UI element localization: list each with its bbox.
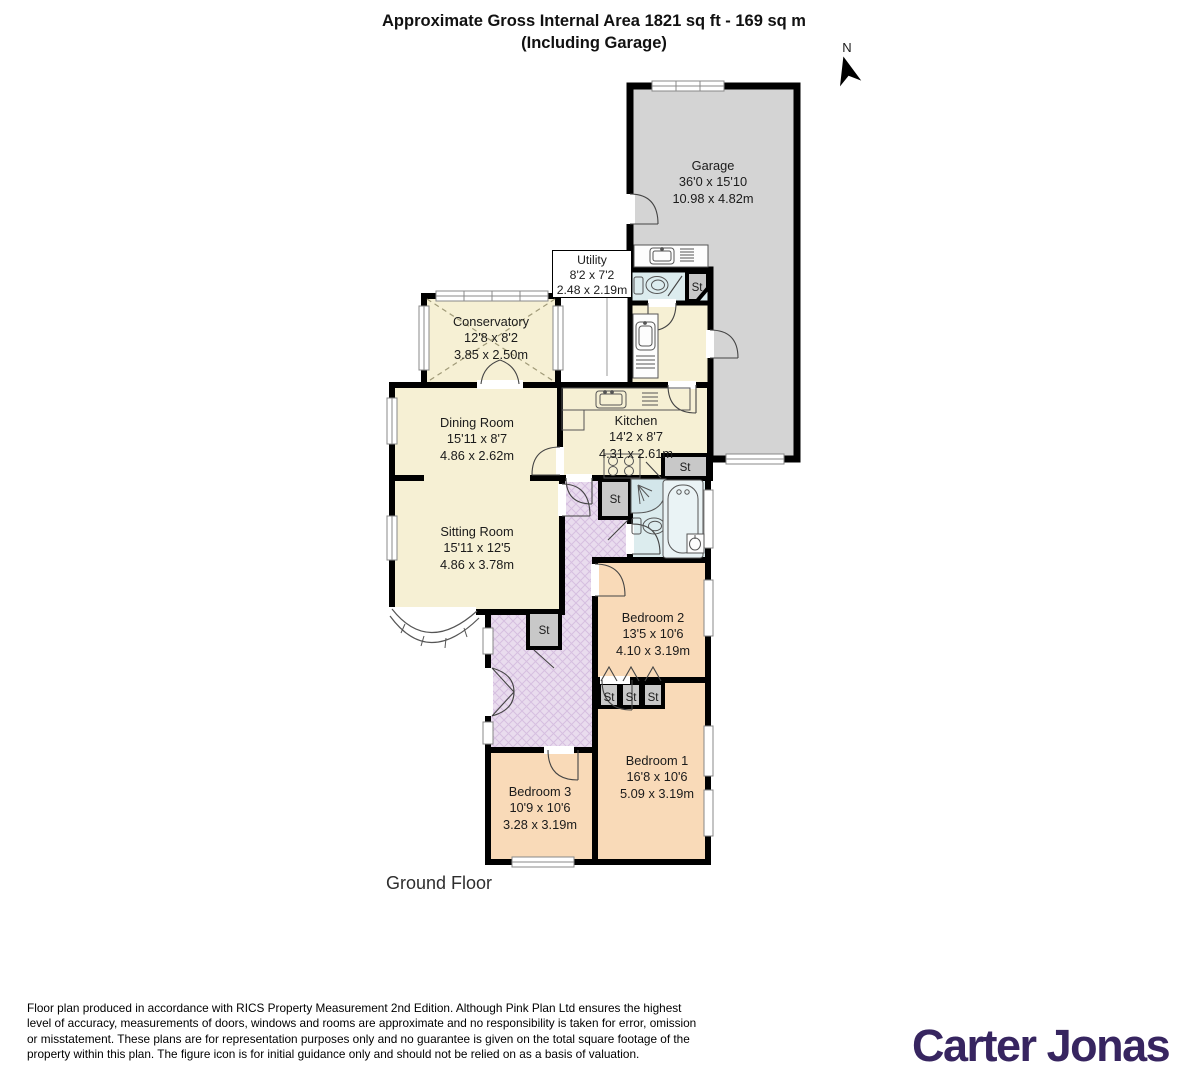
storage-label: St — [648, 692, 660, 704]
floorplan-svg: St St St St St St St N — [0, 0, 1200, 1087]
storage-label: St — [604, 692, 616, 704]
conservatory-label: Conservatory 12'8 x 8'2 3.85 x 2.50m — [431, 314, 551, 363]
bedroom-1-label: Bedroom 1 16'8 x 10'6 5.09 x 3.19m — [597, 753, 717, 802]
floor-label: Ground Floor — [386, 873, 492, 894]
storage-label: St — [626, 692, 638, 704]
dining-room-label: Dining Room 15'11 x 8'7 4.86 x 2.62m — [417, 415, 537, 464]
opening-dining-sitting — [424, 473, 530, 483]
brand-logo: Carter Jonas — [912, 1020, 1169, 1072]
bedroom-3-label: Bedroom 3 10'9 x 10'6 3.28 x 3.19m — [481, 784, 599, 833]
storage-label: St — [680, 462, 692, 474]
garage-workbench-sink-icon — [634, 245, 708, 267]
storage-label: St — [692, 282, 704, 294]
north-arrow: N — [833, 40, 861, 86]
disclaimer-line: or misstatement. These plans are for rep… — [27, 1032, 717, 1047]
north-label: N — [842, 40, 851, 55]
utility-label: Utility 8'2 x 7'2 2.48 x 2.19m — [552, 250, 632, 298]
bedroom-2-label: Bedroom 2 13'5 x 10'6 4.10 x 3.19m — [593, 610, 713, 659]
disclaimer-line: property within this plan. The figure ic… — [27, 1047, 717, 1062]
utility-sink-icon — [633, 314, 658, 378]
disclaimer-line: level of accuracy, measurements of doors… — [27, 1016, 717, 1031]
kitchen-label: Kitchen 14'2 x 8'7 4.31 x 2.61m — [576, 413, 696, 462]
window — [704, 490, 713, 548]
bathroom-sink-icon — [687, 534, 704, 553]
floorplan-page: Approximate Gross Internal Area 1821 sq … — [0, 0, 1200, 1087]
sitting-room-label: Sitting Room 15'11 x 12'5 4.86 x 3.78m — [417, 524, 537, 573]
storage-label: St — [539, 625, 551, 637]
bay-window — [388, 607, 479, 648]
window — [483, 628, 493, 654]
window — [483, 722, 493, 744]
garage-label: Garage 36'0 x 15'10 10.98 x 4.82m — [653, 158, 773, 207]
disclaimer-line: Floor plan produced in accordance with R… — [27, 1001, 717, 1016]
storage-label: St — [610, 494, 622, 506]
disclaimer: Floor plan produced in accordance with R… — [27, 1001, 717, 1063]
north-arrow-icon — [833, 54, 861, 87]
